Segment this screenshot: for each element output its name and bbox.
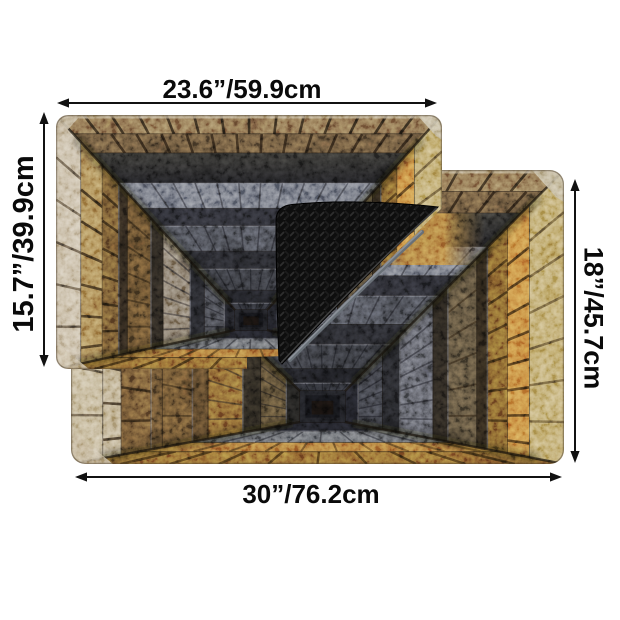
svg-text:15.7”/39.9cm: 15.7”/39.9cm: [8, 155, 40, 332]
svg-text:18”/45.7cm: 18”/45.7cm: [579, 247, 609, 390]
svg-text:23.6”/59.9cm: 23.6”/59.9cm: [162, 74, 321, 104]
svg-text:30”/76.2cm: 30”/76.2cm: [242, 479, 379, 509]
